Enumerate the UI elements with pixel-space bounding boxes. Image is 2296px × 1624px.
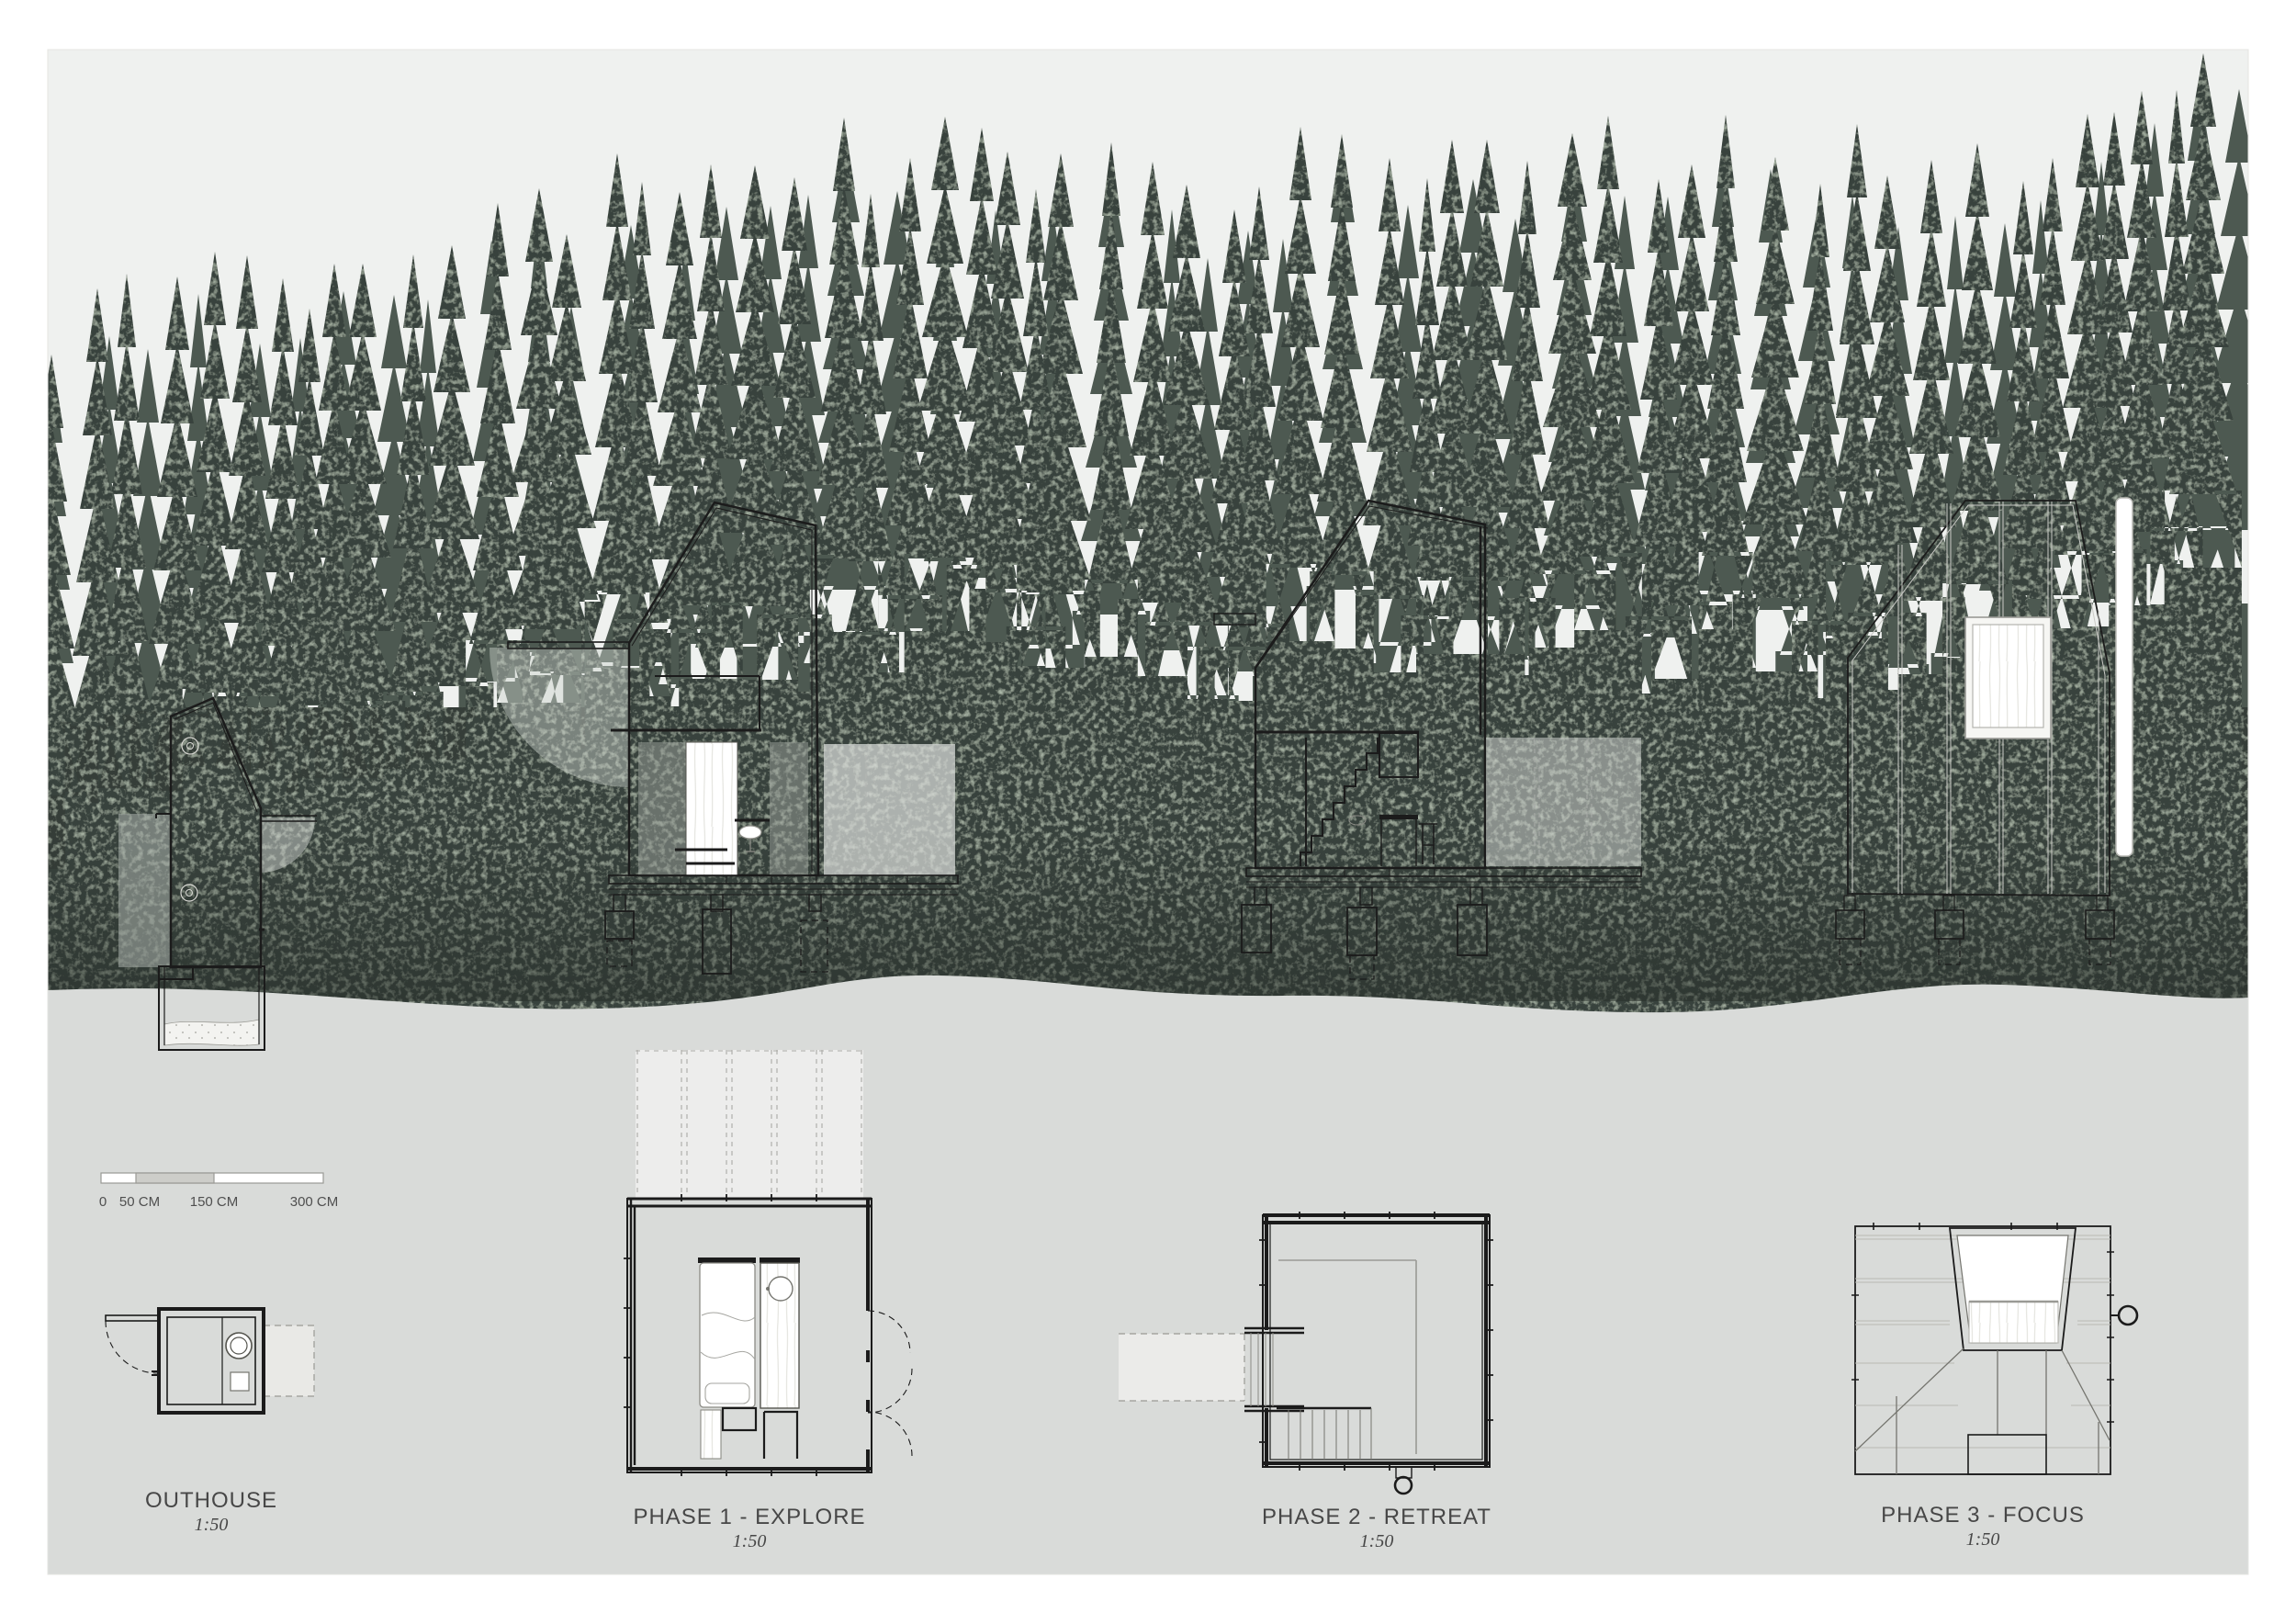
phase1-deck-overlay [824,744,955,875]
ground [48,976,2248,1574]
scale-bar-label-50: 50 CM [119,1194,160,1210]
phase1-sink [739,826,761,839]
outhouse-scale: 1:50 [195,1515,229,1535]
forest-shadow [48,831,2248,1001]
phase3-chimney [2116,498,2133,856]
phase1-plan-deck-dashed [636,1050,863,1199]
outhouse-elevation-overlay [118,814,171,967]
phase3-label: PHASE 3 - FOCUS [1881,1503,2085,1528]
outhouse-label: OUTHOUSE [145,1488,277,1513]
phase1-window-left [638,742,686,875]
board-scene: 0 50 CM 150 CM 300 CM [0,0,2296,1624]
outhouse-plan-deck-dashed [264,1325,314,1396]
scale-bar-label-150: 150 CM [190,1194,239,1210]
outhouse-toilet [226,1333,252,1359]
phase1-label: PHASE 1 - EXPLORE [633,1505,865,1529]
phase2-plan-deck-dashed [1119,1334,1244,1401]
presentation-board: 0 50 CM 150 CM 300 CM [0,0,2296,1624]
phase1-window-right [770,742,808,875]
phase1-bed [698,1257,756,1407]
scale-bar-label-0: 0 [99,1194,107,1210]
phase3-scale: 1:50 [1966,1529,2000,1550]
phase3-skylight [1950,1228,2076,1350]
scale-bar-label-300: 300 CM [290,1194,339,1210]
phase1-partition-sink [760,1257,800,1408]
phase3-window [1965,617,2051,739]
phase1-scale: 1:50 [733,1531,767,1551]
phase2-scale: 1:50 [1360,1531,1394,1551]
phase2-deck-overlay [1486,738,1641,866]
phase2-label: PHASE 2 - RETREAT [1262,1505,1491,1529]
